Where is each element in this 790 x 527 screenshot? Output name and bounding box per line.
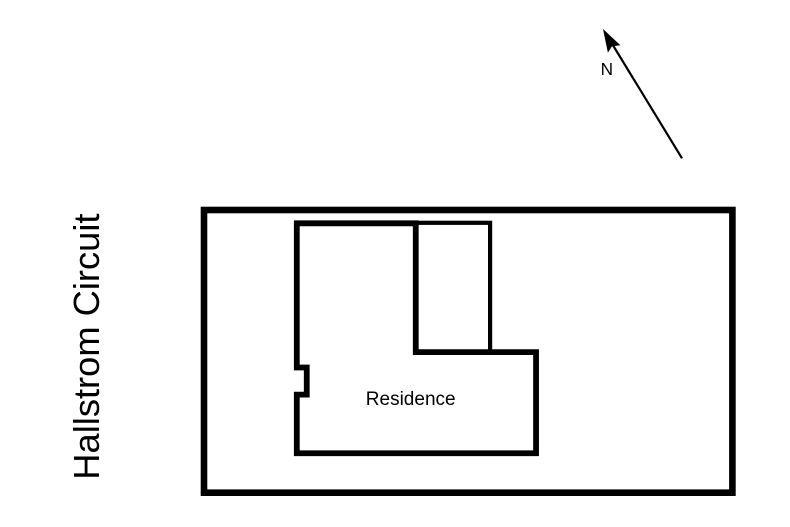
svg-text:Residence: Residence	[366, 389, 456, 410]
svg-text:Hallstrom Circuit: Hallstrom Circuit	[66, 213, 107, 479]
svg-text:N: N	[601, 59, 613, 79]
